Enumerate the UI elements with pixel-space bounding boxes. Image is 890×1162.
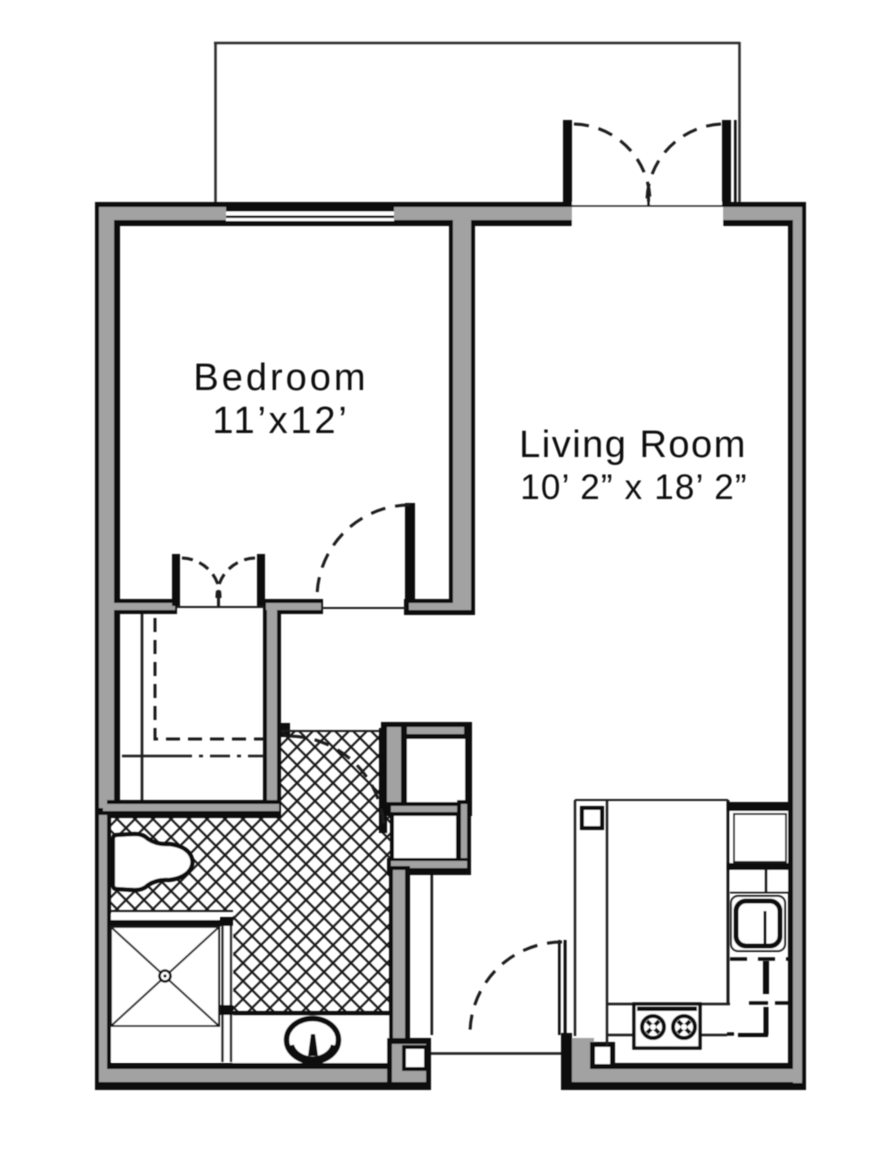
svg-text:Living Room: Living Room — [519, 424, 747, 466]
svg-text:Bedroom: Bedroom — [193, 357, 368, 399]
svg-text:10’ 2” x 18’ 2”: 10’ 2” x 18’ 2” — [520, 468, 747, 507]
svg-text:11’x12’: 11’x12’ — [212, 400, 349, 442]
